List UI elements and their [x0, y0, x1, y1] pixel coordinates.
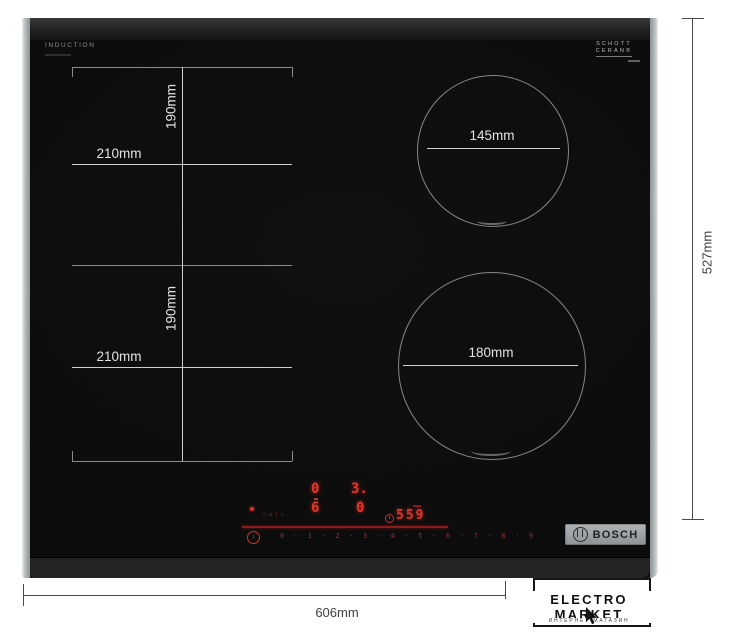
schott-ceran-print: SCHOTT CERAN®: [584, 41, 644, 62]
power-indicator-dot: [250, 507, 254, 511]
zone-display-top-left: 0: [311, 481, 319, 497]
height-dimension-label: 527mm: [700, 225, 715, 281]
panel-function-icons: □ ≡ | ⌂: [262, 512, 285, 518]
cooktop-back-edge: [30, 18, 650, 40]
side-trim-left: [22, 18, 30, 578]
height-dimension-line: [692, 18, 693, 520]
zone-display-bottom-left: 6: [311, 500, 319, 516]
timer-display: 559: [396, 508, 425, 523]
left-top-height-label: 190mm: [164, 79, 179, 135]
right-top-burner-mark: [477, 217, 507, 225]
left-bottom-width-label: 210mm: [91, 349, 147, 364]
left-top-width-line: [72, 164, 292, 165]
timer-mode-mark: [413, 505, 421, 507]
right-top-diameter-line: [427, 148, 560, 149]
height-dimension-bottom-cap: [682, 519, 704, 520]
store-watermark: ELECTRO MARKET ИНТЕРНЕТ-МАГАЗИН: [518, 576, 660, 628]
cooktop-front-edge: [30, 557, 650, 578]
height-dimension-top-cap: [682, 18, 704, 19]
width-dimension-label: 606mm: [287, 605, 387, 620]
zone-outline-bottom-left-tick: [72, 451, 73, 461]
bosch-armature-icon: [573, 527, 588, 542]
side-trim-right: [650, 18, 658, 578]
zone-outline-top-right-tick: [292, 67, 293, 77]
schott-rule: [596, 56, 632, 57]
bosch-badge-label: BOSCH: [593, 529, 639, 541]
power-level-slider: 0 · 1 · 2 · 3 · 4 · 5 · 6 · 7 · 8 · 9: [280, 532, 472, 540]
width-dimension-line: [23, 595, 505, 596]
left-top-width-label: 210mm: [91, 146, 147, 161]
zone-outline-bottom-right-tick: [292, 451, 293, 461]
width-dimension-left-cap: [23, 584, 24, 606]
schott-micro-text-blur: [628, 60, 640, 62]
schott-line2: CERAN®: [584, 48, 644, 55]
zone-outline-top-left-tick: [72, 67, 73, 77]
induction-cooktop: INDUCTION SCHOTT CERAN® 190mm 210mm 190m…: [22, 18, 658, 578]
panel-underline: [242, 526, 448, 528]
right-bottom-burner-circle: [398, 272, 586, 460]
product-dimension-image: INDUCTION SCHOTT CERAN® 190mm 210mm 190m…: [0, 0, 733, 640]
zone-outline-bottom: [72, 461, 292, 462]
left-bottom-width-line: [72, 367, 292, 368]
model-print-blur: [45, 54, 71, 56]
mouse-cursor-icon: [585, 607, 598, 625]
width-dimension-right-cap: [505, 581, 506, 599]
right-top-burner-circle: [417, 75, 569, 227]
right-bottom-diameter-label: 180mm: [463, 345, 519, 360]
right-bottom-diameter-line: [403, 365, 578, 366]
zone-vertical-measure-line: [182, 67, 183, 461]
right-bottom-burner-mark: [471, 446, 511, 456]
info-key-icon: i: [247, 531, 260, 544]
schott-line1: SCHOTT: [584, 41, 644, 48]
right-top-diameter-label: 145mm: [464, 128, 520, 143]
induction-print-label: INDUCTION: [45, 42, 96, 49]
bosch-badge: BOSCH: [565, 524, 646, 545]
timer-clock-icon: [385, 514, 394, 523]
zone-display-top-right: 3.: [351, 481, 368, 497]
left-bottom-height-label: 190mm: [164, 281, 179, 337]
zone-display-bottom-right: 0: [356, 500, 364, 516]
